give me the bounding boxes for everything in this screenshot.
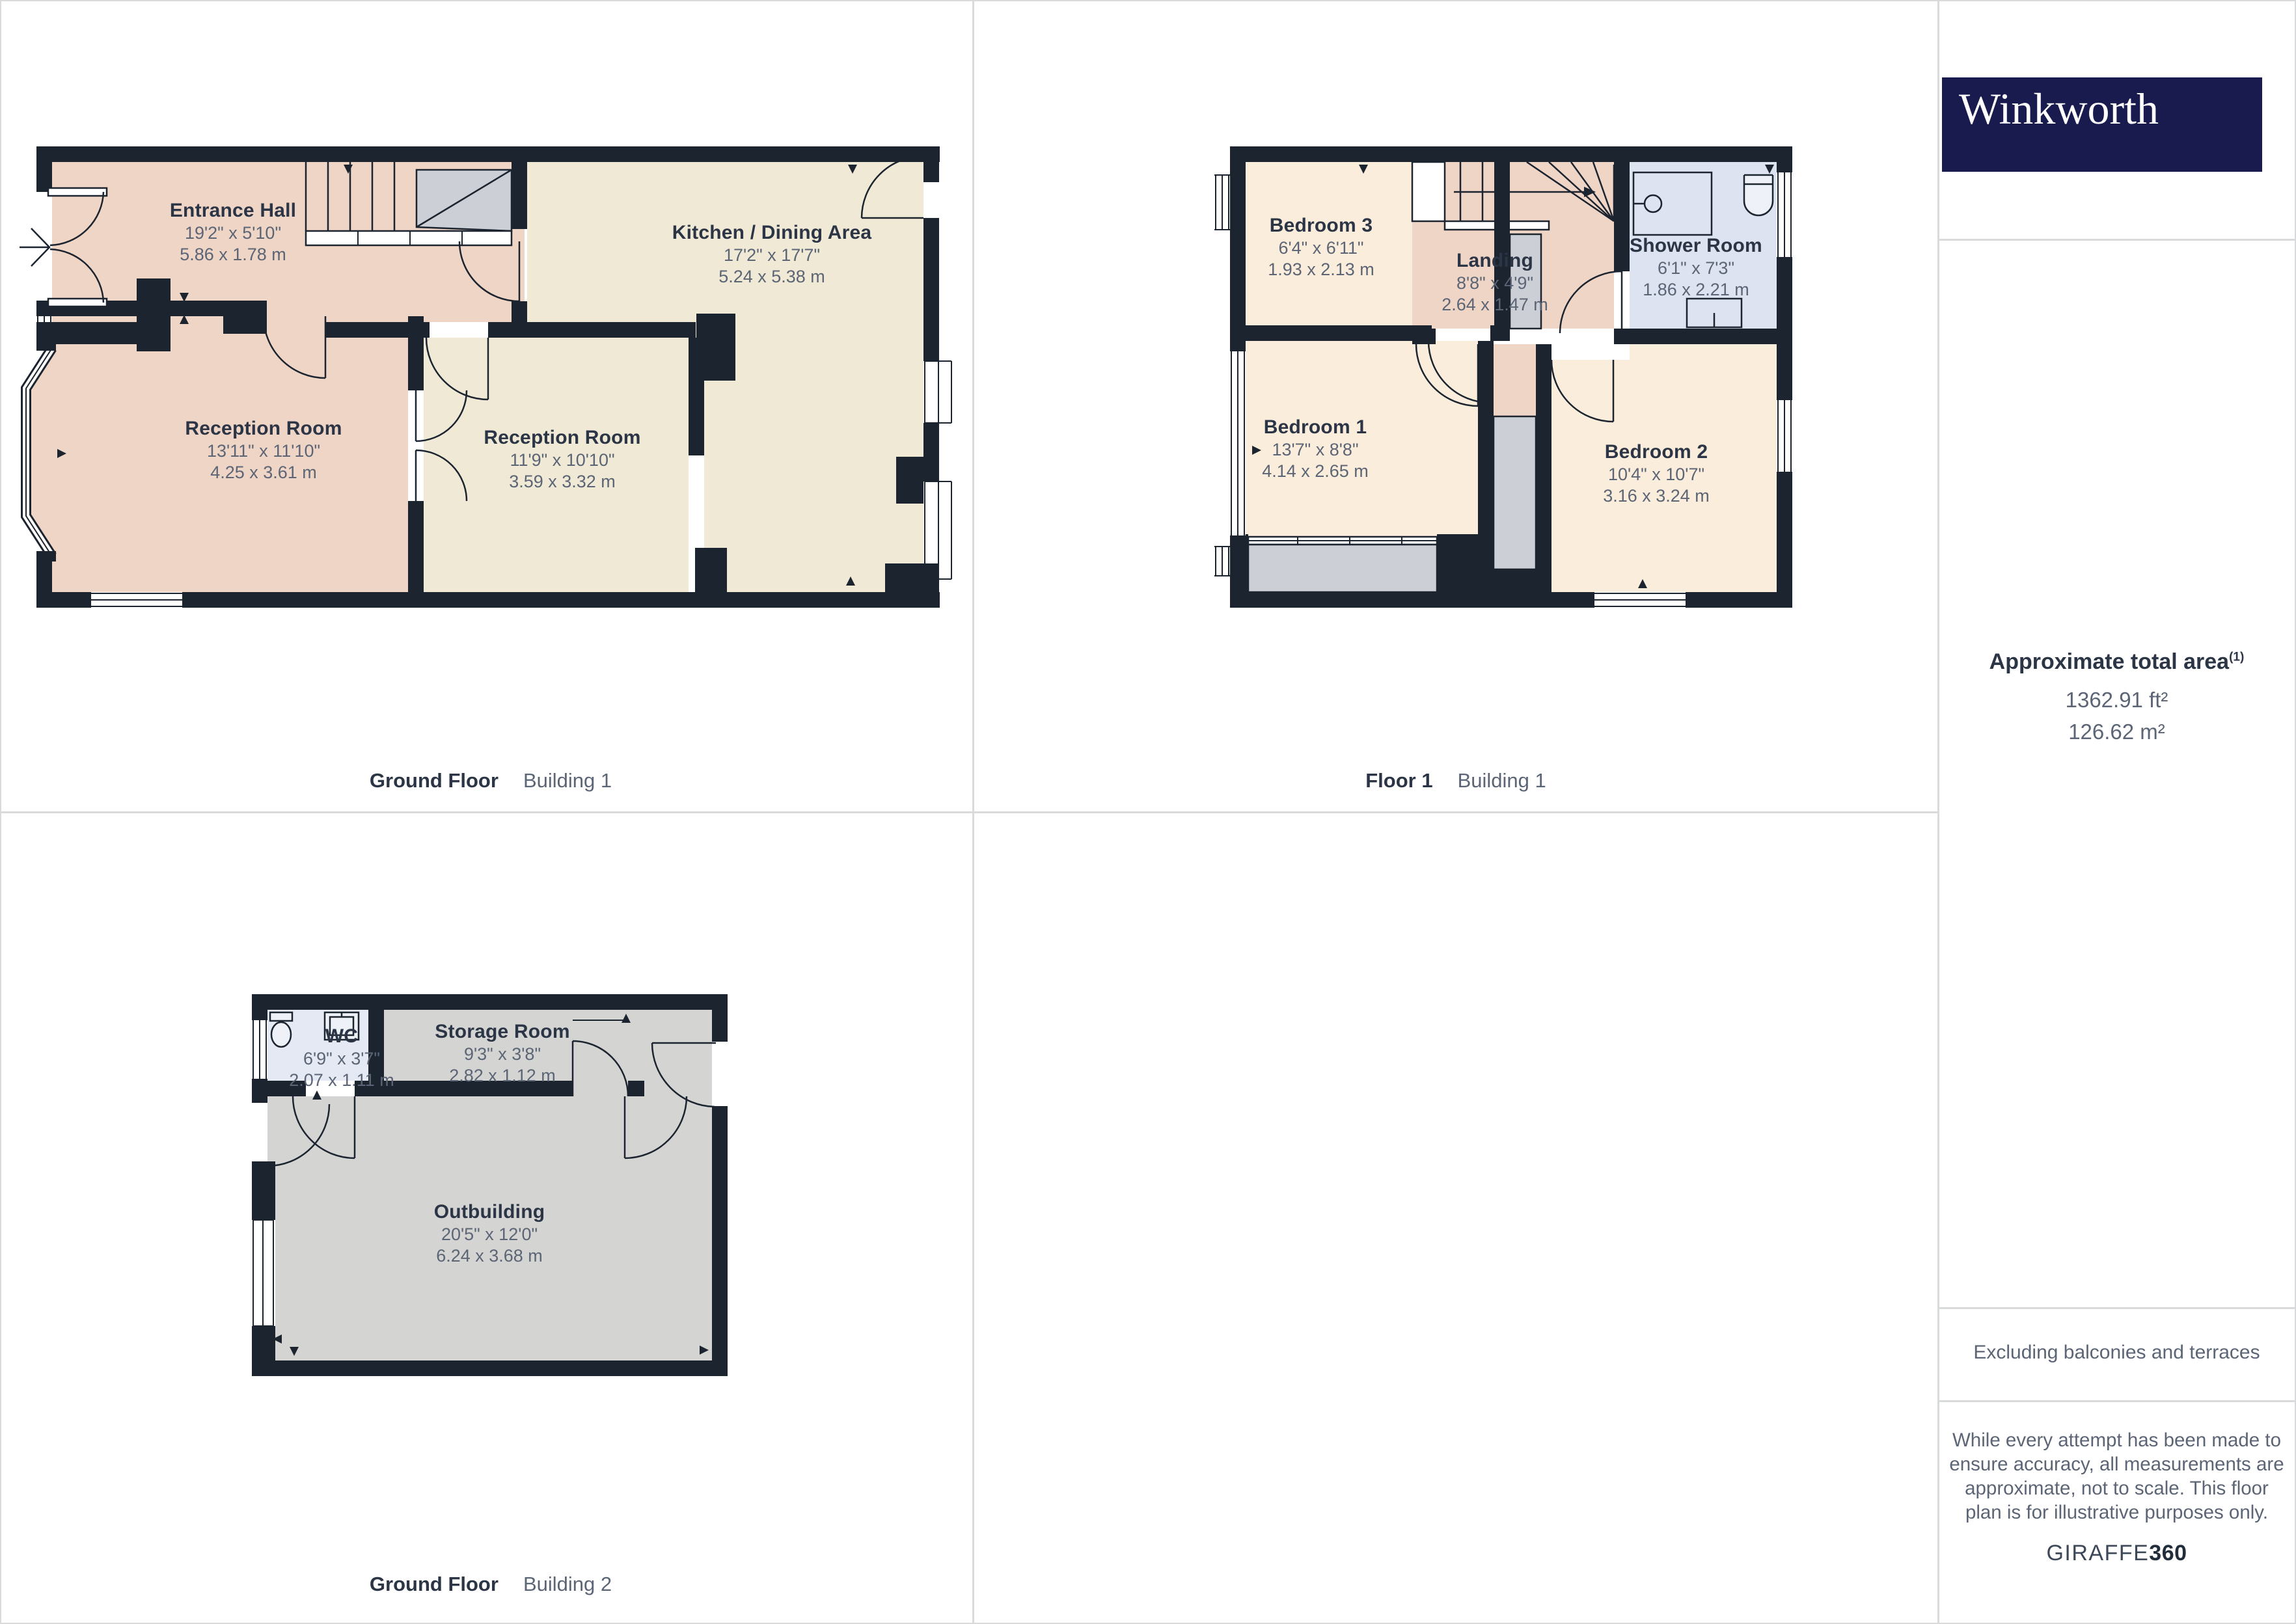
giraffe360-brand: GIRAFFE	[2046, 1541, 2149, 1565]
disclaimer-line: plan is for illustrative purposes only.	[1937, 1500, 2296, 1524]
room-label-bedroom-3: Bedroom 3 6'4" x 6'11" 1.93 x 2.13 m	[1268, 214, 1374, 280]
footer-floor-1-building-1: Floor 1 Building 1	[1365, 769, 1546, 792]
room-label-bedroom-1: Bedroom 1 13'7" x 8'8" 4.14 x 2.65 m	[1262, 416, 1369, 482]
total-area-section: Approximate total area(1) 1362.91 ft² 12…	[1937, 649, 2296, 748]
giraffe360-360: 360	[2149, 1541, 2187, 1565]
disclaimer-line: While every attempt has been made to	[1937, 1428, 2296, 1452]
room-label-entrance-hall: Entrance Hall 19'2" x 5'10" 5.86 x 1.78 …	[170, 199, 296, 265]
floor-label: Ground Floor	[370, 1573, 499, 1596]
floor-label: Floor 1	[1365, 769, 1432, 792]
room-label-reception-room-left: Reception Room 13'11" x 11'10" 4.25 x 3.…	[185, 417, 342, 483]
floorplan-page: Entrance Hall 19'2" x 5'10" 5.86 x 1.78 …	[0, 0, 2296, 1624]
room-label-storage-room: Storage Room 9'3" x 3'8" 2.82 x 1.12 m	[435, 1020, 569, 1087]
floorplan-floor-1-building-1: Bedroom 3 6'4" x 6'11" 1.93 x 2.13 m Lan…	[1207, 146, 1792, 608]
total-area-heading: Approximate total area(1)	[1937, 649, 2296, 675]
room-label-outbuilding: Outbuilding 20'5" x 12'0" 6.24 x 3.68 m	[434, 1200, 545, 1267]
floor-label: Ground Floor	[370, 769, 499, 792]
total-area-m: 126.62 m²	[1937, 716, 2296, 748]
winkworth-logo: Winkworth	[1942, 77, 2262, 172]
footer-ground-floor-building-2: Ground Floor Building 2	[370, 1573, 612, 1596]
building-label: Building 1	[523, 769, 612, 792]
building-label: Building 1	[1458, 769, 1546, 792]
room-label-shower-room: Shower Room 6'1" x 7'3" 1.86 x 2.21 m	[1630, 234, 1762, 301]
building-label: Building 2	[523, 1573, 612, 1596]
grid-vertical-sidebar	[1937, 0, 1939, 1624]
sidebar-divider-note-top	[1939, 1307, 2296, 1309]
disclaimer-line: approximate, not to scale. This floor	[1937, 1476, 2296, 1500]
excluding-note: Excluding balconies and terraces	[1937, 1342, 2296, 1364]
winkworth-logo-text: Winkworth	[1959, 84, 2262, 133]
room-label-reception-room-right: Reception Room 11'9" x 10'10" 3.59 x 3.3…	[484, 426, 640, 493]
floorplan-ground-floor-building-1: Entrance Hall 19'2" x 5'10" 5.86 x 1.78 …	[20, 146, 957, 608]
disclaimer: While every attempt has been made to ens…	[1937, 1428, 2296, 1524]
floorplan-ground-floor-building-2: WC 6'9" x 3'7" 2.07 x 1.11 m Storage Roo…	[252, 994, 728, 1376]
sidebar-divider-logo	[1939, 239, 2296, 241]
disclaimer-line: ensure accuracy, all measurements are	[1937, 1452, 2296, 1476]
total-area-footnote-marker: (1)	[2229, 651, 2244, 664]
giraffe360-logo: GIRAFFE360	[1937, 1541, 2296, 1566]
floorplan-drawing-gf-b1	[20, 146, 957, 608]
room-label-bedroom-2: Bedroom 2 10'4" x 10'7" 3.16 x 3.24 m	[1603, 440, 1710, 507]
grid-horizontal	[0, 811, 1937, 813]
room-label-landing: Landing 8'8" x 4'9" 2.64 x 1.47 m	[1442, 249, 1548, 316]
room-label-wc: WC 6'9" x 3'7" 2.07 x 1.11 m	[289, 1025, 394, 1091]
footer-ground-floor-building-1: Ground Floor Building 1	[370, 769, 612, 792]
sidebar-divider-note-bottom	[1939, 1400, 2296, 1402]
room-label-kitchen-dining: Kitchen / Dining Area 17'2" x 17'7" 5.24…	[672, 221, 871, 288]
total-area-ft: 1362.91 ft²	[1937, 684, 2296, 716]
